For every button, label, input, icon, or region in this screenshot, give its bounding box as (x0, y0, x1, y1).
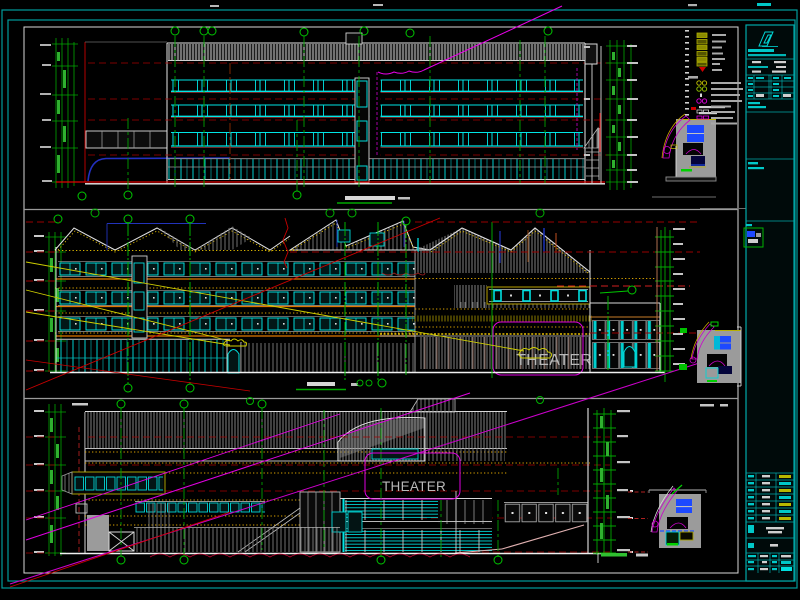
svg-text:THEATER: THEATER (382, 479, 446, 494)
svg-text:THEATER: THEATER (516, 352, 592, 369)
